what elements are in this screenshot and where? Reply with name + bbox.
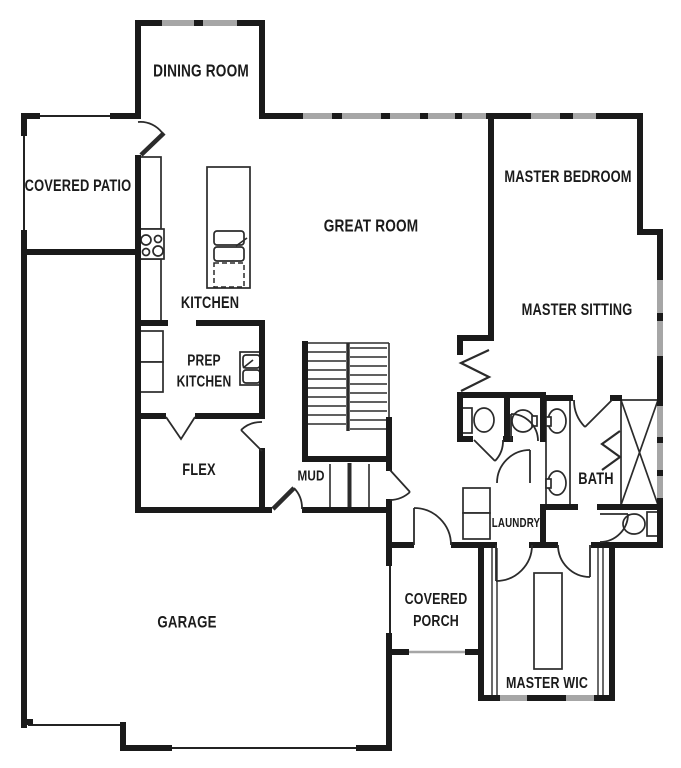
floor-plan-drawing — [0, 0, 681, 768]
room-label-covered-porch-line1: COVERED — [405, 592, 468, 608]
wic-island — [534, 573, 562, 669]
room-label-flex: FLEX — [182, 462, 216, 479]
room-label-mud: MUD — [297, 469, 324, 484]
room-label-master-sitting: MASTER SITTING — [522, 302, 633, 319]
cooktop — [137, 229, 164, 259]
room-label-covered-patio: COVERED PATIO — [25, 178, 132, 195]
room-label-laundry: LAUNDRY — [492, 517, 540, 530]
room-label-prep-kitchen-line1: PREP — [187, 353, 221, 369]
room-label-kitchen: KITCHEN — [181, 295, 239, 312]
double-vanity-sinks — [546, 400, 570, 507]
room-label-prep-kitchen-line2: KITCHEN — [177, 374, 232, 390]
room-label-master-wic: MASTER WIC — [506, 676, 588, 692]
washer-dryer — [463, 488, 490, 539]
prep-fridge — [140, 331, 163, 392]
room-label-master-bedroom: MASTER BEDROOM — [504, 169, 631, 186]
room-label-bath: BATH — [578, 471, 613, 488]
room-label-garage: GARAGE — [157, 614, 216, 631]
room-label-great-room: GREAT ROOM — [324, 217, 419, 235]
floor-plan: DINING ROOM COVERED PATIO KITCHEN GREAT … — [0, 0, 681, 768]
powder-toilet — [460, 408, 494, 433]
room-label-dining: DINING ROOM — [153, 62, 249, 80]
room-label-covered-porch-line2: PORCH — [413, 614, 459, 630]
